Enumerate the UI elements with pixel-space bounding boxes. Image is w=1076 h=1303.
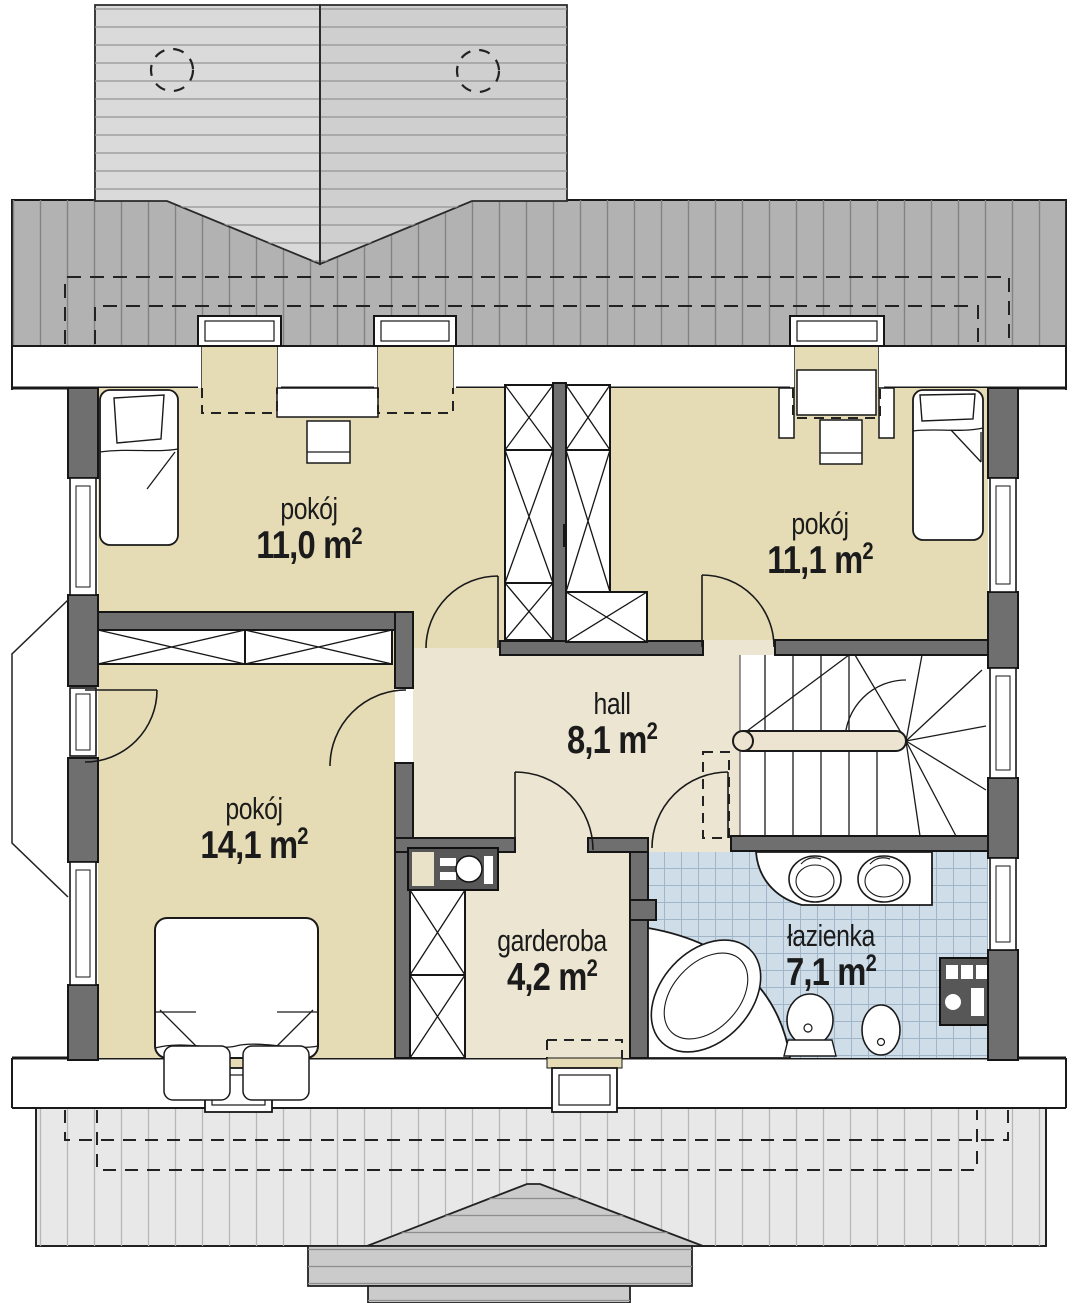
room-label-garderoba: garderoba 4,2 m2 xyxy=(484,925,621,997)
dormer-window xyxy=(374,316,456,346)
window xyxy=(990,478,1016,592)
niche-window-a xyxy=(202,346,277,413)
knee-wall-stub xyxy=(779,388,794,438)
balcony-door xyxy=(70,688,96,756)
stair-handrail xyxy=(734,731,906,751)
floor-plan-drawing xyxy=(0,0,1076,1303)
wardrobe-cell xyxy=(566,450,610,592)
bottom-window xyxy=(547,1058,622,1112)
knee-wall xyxy=(277,388,378,417)
bidet xyxy=(862,1005,900,1055)
wardrobe-cell xyxy=(566,592,647,642)
wardrobe-cell xyxy=(505,385,553,450)
wardrobe-cell xyxy=(505,450,553,583)
room-name: pokój xyxy=(770,508,871,540)
room-name: łazienka xyxy=(787,920,875,952)
knee-wall-stub xyxy=(879,388,894,438)
room-area: 8,1 m2 xyxy=(567,720,657,760)
window xyxy=(990,858,1016,950)
room-label-pokoj-14-1: pokój 14,1 m2 xyxy=(190,793,318,865)
wardrobe-cell xyxy=(566,385,610,450)
handrail-newel xyxy=(733,731,753,751)
room-label-pokoj-11-0: pokój 11,0 m2 xyxy=(246,493,372,565)
room-label-hall: hall 8,1 m2 xyxy=(558,688,665,760)
room-label-lazienka: łazienka 7,1 m2 xyxy=(776,920,886,992)
window xyxy=(990,668,1016,778)
room-name: garderoba xyxy=(497,925,606,957)
pillow xyxy=(243,1046,309,1100)
room-area: 14,1 m2 xyxy=(200,825,307,865)
sink xyxy=(789,856,841,902)
bed-room-11-1 xyxy=(913,390,983,540)
room-label-pokoj-11-1: pokój 11,1 m2 xyxy=(757,508,883,580)
wardrobe-cell xyxy=(98,630,245,664)
desk xyxy=(797,370,876,415)
room-area: 11,0 m2 xyxy=(256,525,362,565)
window xyxy=(70,862,96,985)
room-name: pokój xyxy=(259,493,360,525)
room-area: 11,1 m2 xyxy=(767,540,873,580)
roof-main xyxy=(12,200,1066,346)
wardrobe-cell xyxy=(410,975,465,1058)
wardrobe-cell xyxy=(245,630,392,664)
bay-roof-outline xyxy=(12,600,68,897)
dormer-window xyxy=(198,316,281,346)
wardrobe-cell xyxy=(410,890,465,975)
toilet xyxy=(784,994,836,1056)
wardrobe-cell xyxy=(505,583,553,640)
room-name: hall xyxy=(569,688,655,720)
room-area: 7,1 m2 xyxy=(785,952,877,992)
room-area: 4,2 m2 xyxy=(495,957,610,997)
desk-room-11-0 xyxy=(307,421,350,463)
bed-room-11-0 xyxy=(100,390,178,545)
roof-bottom xyxy=(36,1108,1046,1303)
floor-plan-page: pokój 11,0 m2 pokój 11,1 m2 hall 8,1 m2 … xyxy=(0,0,1076,1303)
window xyxy=(70,478,96,595)
desk-room-11-1 xyxy=(820,420,862,464)
exterior-wall-top-band xyxy=(12,346,1066,390)
pillow xyxy=(164,1046,230,1100)
dormer-window xyxy=(790,316,884,346)
chimney-block xyxy=(940,958,988,1025)
sink xyxy=(858,856,910,902)
room-name: pokój xyxy=(203,793,305,825)
garderoba-basin-unit xyxy=(408,848,498,890)
niche-window-b xyxy=(378,346,453,413)
